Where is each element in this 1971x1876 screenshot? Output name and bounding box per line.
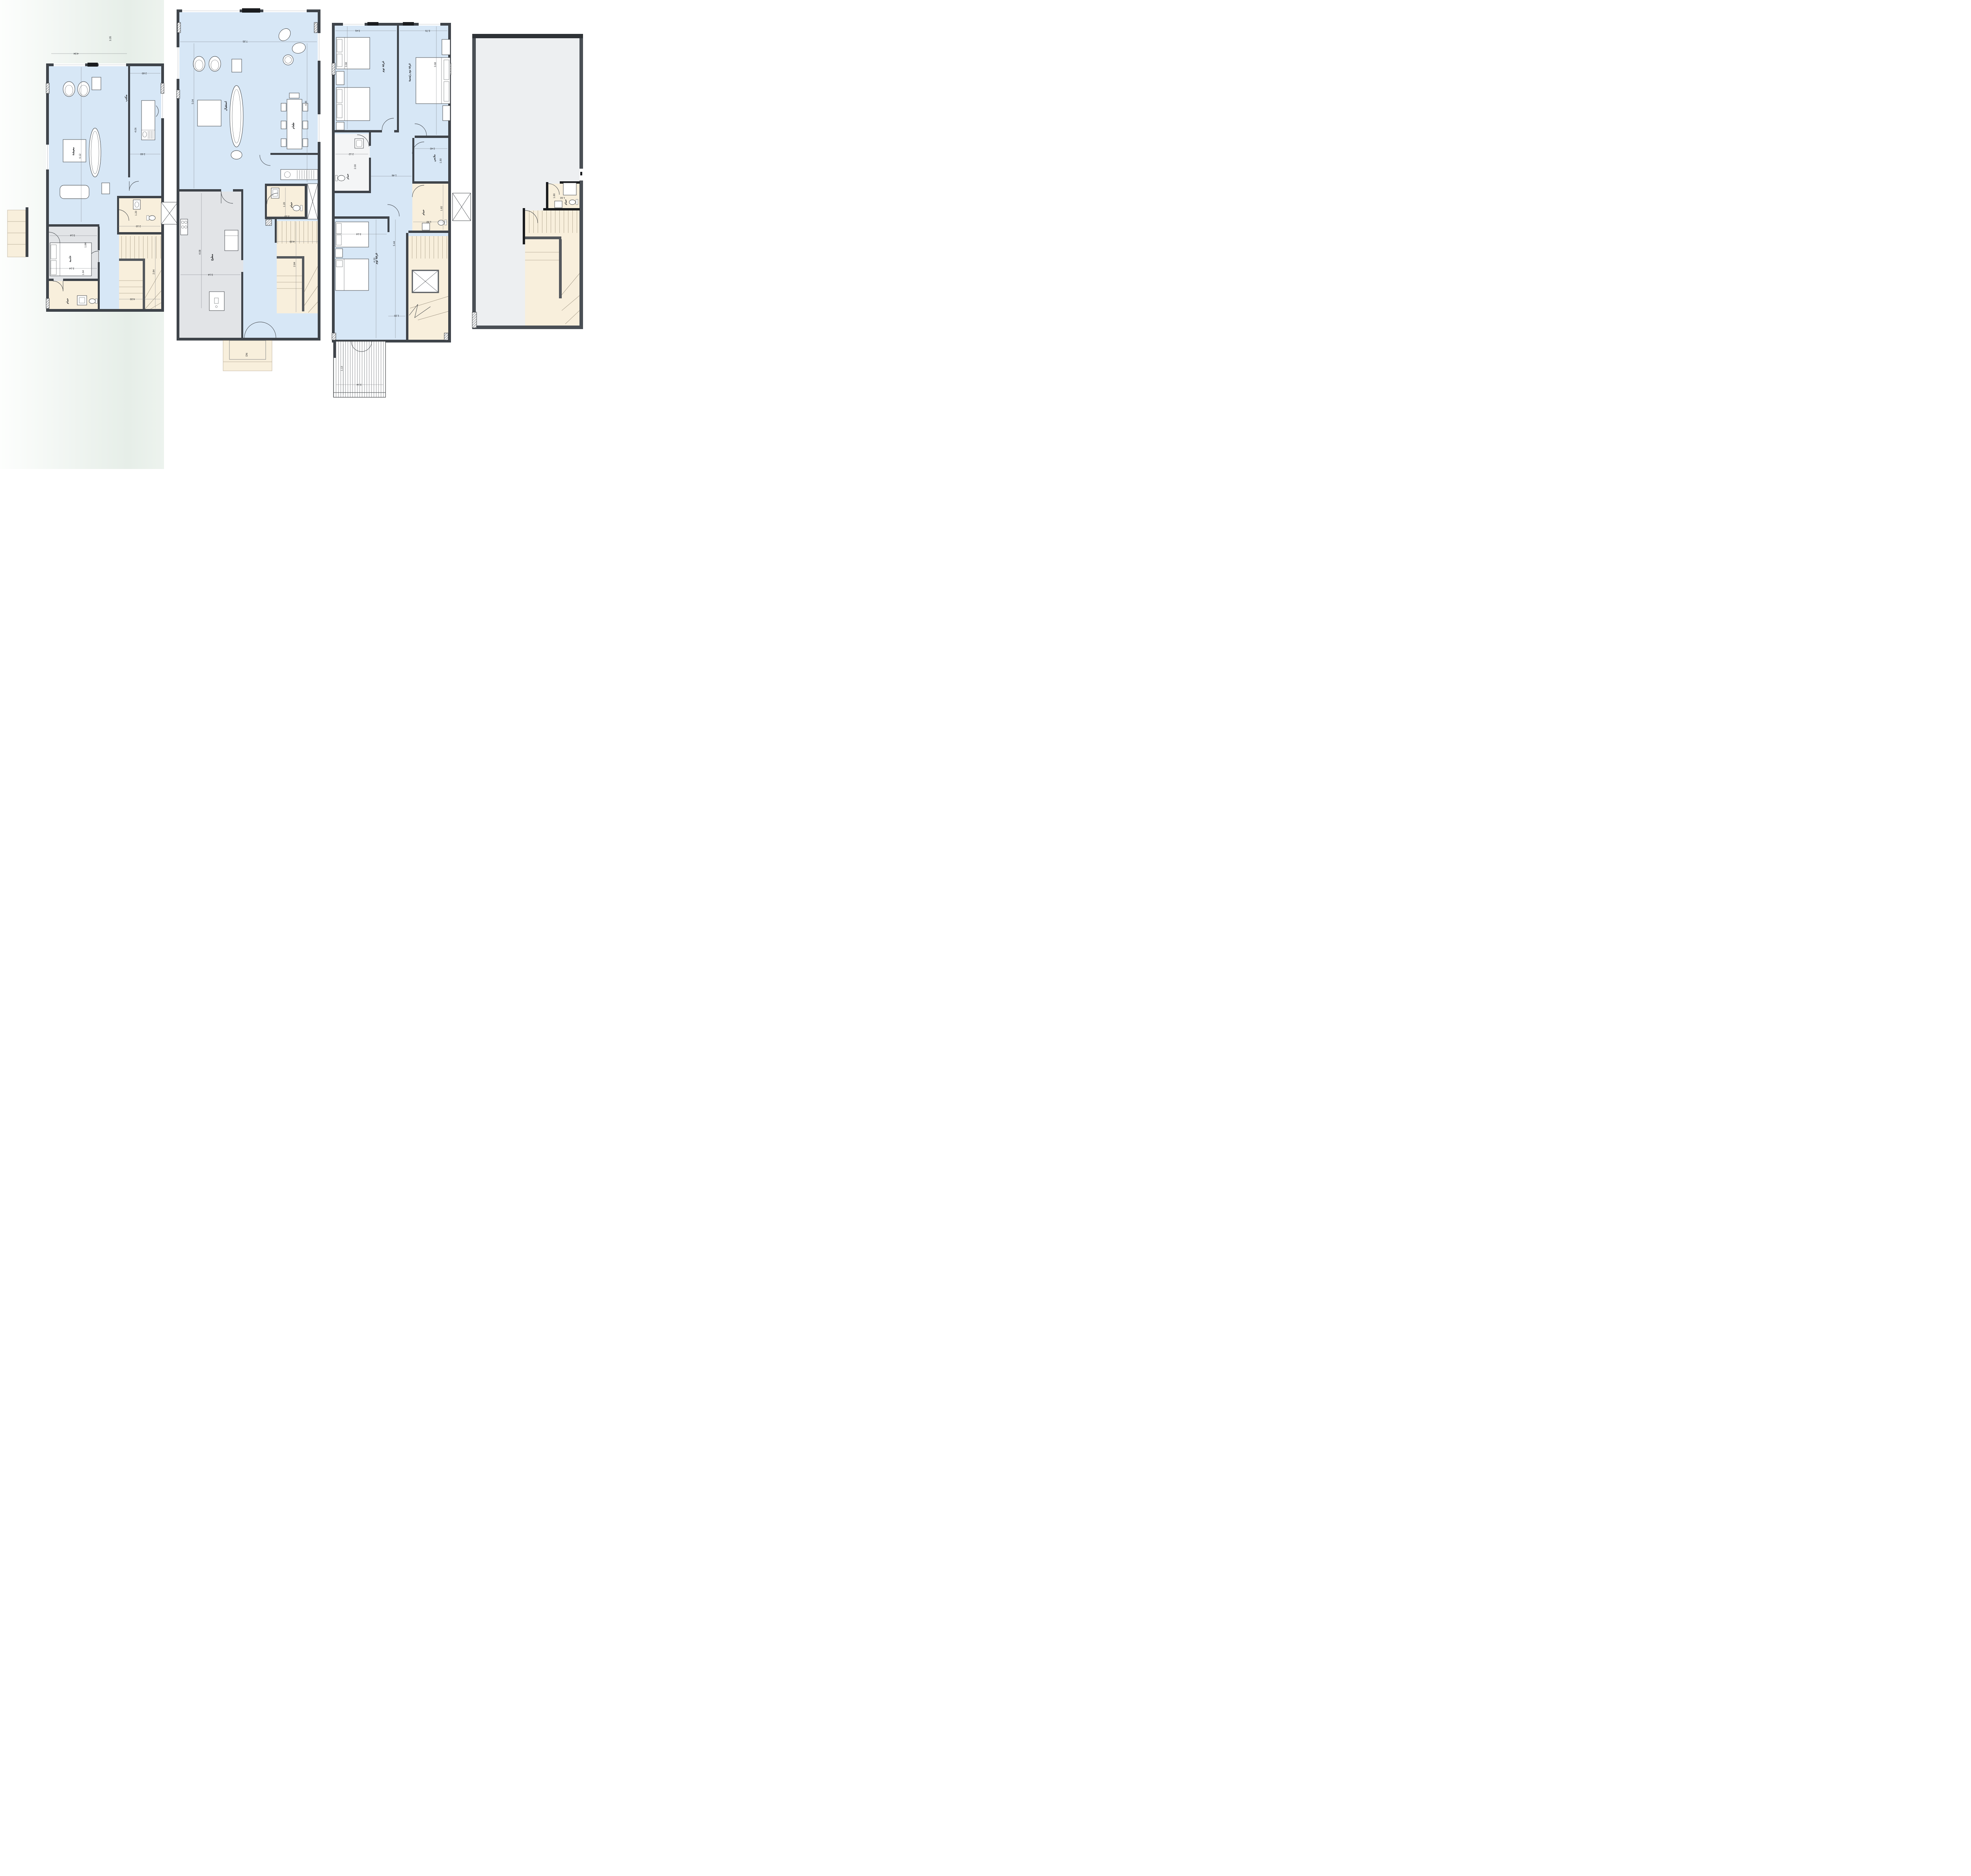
dim-label: 1.92 xyxy=(426,220,431,223)
dim-label: 7.35 xyxy=(242,40,248,43)
wall-accent xyxy=(242,8,260,13)
dim-label: 3.35 xyxy=(109,36,112,41)
dim-label: 1.82 xyxy=(440,206,443,211)
kitchen-wall xyxy=(179,189,221,192)
sofa xyxy=(60,185,89,199)
kitchen-floor xyxy=(179,192,243,338)
pillow xyxy=(336,261,343,267)
nightstand xyxy=(335,249,343,257)
column-post xyxy=(177,22,181,33)
closet-wall xyxy=(412,181,448,184)
bathroom1-floor xyxy=(335,134,370,193)
stair-wall xyxy=(275,219,277,243)
dim-label: 4.96 xyxy=(305,100,307,106)
dim-label: 4.00 xyxy=(130,298,135,300)
dim-label: 3.68 xyxy=(434,62,437,67)
room-label-bath: حمام xyxy=(66,298,69,304)
bathroom1-wall xyxy=(369,158,371,193)
dim-label: 5.44 xyxy=(393,241,396,246)
bathroom-wall xyxy=(546,182,548,208)
kitchen-wall xyxy=(241,189,243,260)
dining-chair xyxy=(281,103,286,111)
wall-accent xyxy=(403,22,414,26)
dim-label: 4.00 xyxy=(289,240,294,243)
toilet xyxy=(293,205,300,211)
dim-label: 3.14 xyxy=(356,383,361,386)
toilet xyxy=(569,200,576,205)
dining-chair xyxy=(289,93,299,98)
column-post xyxy=(177,90,180,99)
sink xyxy=(555,201,562,208)
room-label-bedroom2: غرفة نوم xyxy=(374,253,378,264)
dim-label: 1.84 xyxy=(84,242,87,248)
wall-accent xyxy=(88,63,98,67)
shower xyxy=(563,183,576,195)
dim-label: 1.80 xyxy=(553,193,556,198)
stair-wall xyxy=(406,233,408,340)
dim-label: 6.12 xyxy=(79,153,82,158)
roof-plan-d: 1.80 1.92 حمام xyxy=(472,34,583,329)
dim-label: 2.60 xyxy=(140,153,145,155)
column-post xyxy=(266,220,272,225)
nightstand xyxy=(336,122,344,130)
dim-label: 2.10 xyxy=(284,215,289,218)
bedroom1-wall xyxy=(394,130,399,132)
pillow xyxy=(337,54,342,67)
toilet xyxy=(149,216,155,220)
bathroom-wall xyxy=(265,186,267,219)
side-table xyxy=(102,183,110,194)
dim-label: 4.08 xyxy=(199,249,201,255)
column-post xyxy=(332,333,336,340)
wc-wall xyxy=(117,198,119,232)
dining-chair xyxy=(281,121,286,129)
side-table xyxy=(92,77,101,90)
stair-wall xyxy=(523,208,525,244)
bathroom-wall xyxy=(305,186,307,217)
dim-label: 1.80 xyxy=(440,158,442,163)
room-label-bath: حمام xyxy=(290,202,293,208)
room-label-bedroom1: غرفة نوم xyxy=(381,61,385,73)
column-post xyxy=(314,22,317,33)
room-label-kitchen: مطبخ xyxy=(210,254,214,261)
room-label-bath1: حمام xyxy=(346,174,349,179)
floor-plan-sheet: 3.35 xyxy=(0,0,589,469)
dim-label: 5.04 xyxy=(192,99,194,104)
entry-steps xyxy=(7,210,26,257)
pillow xyxy=(337,89,342,103)
top-wall xyxy=(472,34,583,38)
maid-room-wall xyxy=(98,227,100,250)
nightstand xyxy=(443,106,450,121)
dim-label: 1.20 xyxy=(135,210,138,216)
maid-room-wall xyxy=(98,262,100,309)
dim-label: 1.20 xyxy=(394,314,399,317)
side-table xyxy=(232,59,242,72)
dim-label: 1.13 xyxy=(341,366,343,371)
wall-accent xyxy=(367,22,378,26)
toilet xyxy=(438,220,444,225)
toilet xyxy=(89,299,95,303)
wardrobe xyxy=(442,39,450,55)
dim-label: 3.70 xyxy=(425,29,430,32)
basin xyxy=(285,172,291,178)
rug xyxy=(197,100,221,126)
dim-label: 3.14 xyxy=(208,273,213,276)
entry-marker: DN xyxy=(246,353,248,357)
bedroom-partition xyxy=(397,26,399,132)
hall-wall xyxy=(270,153,320,155)
room-label-dining: طعام xyxy=(291,123,295,129)
dim-label: 2.42 xyxy=(430,147,435,150)
wc-wall xyxy=(117,196,161,198)
bathroom1-wall xyxy=(335,191,371,193)
garden-wall xyxy=(26,207,28,257)
toilet xyxy=(338,175,345,181)
dim-label: 2.00 xyxy=(354,164,357,169)
floor-plan-b: DN 7.35 5.04 4.96 4.08 3.14 1.20 2.10 4.… xyxy=(177,8,320,371)
room-label-closet: ملابس xyxy=(433,154,436,162)
dim-label: 1.46 xyxy=(391,174,397,177)
dim-label: 3.41 xyxy=(355,29,360,32)
dim-label: 2.84 xyxy=(293,262,296,267)
wall-accent xyxy=(580,172,582,175)
room-label-maid: خادمة xyxy=(69,256,72,262)
dim-label: 2.10 xyxy=(136,225,141,227)
room-label-bath2: حمام xyxy=(422,210,425,215)
dim-label: 1.64 xyxy=(82,270,85,275)
dim-label: 3.14 xyxy=(356,233,361,235)
column-post xyxy=(46,83,49,93)
pillow xyxy=(336,223,341,234)
bedroom2-wall xyxy=(387,216,389,232)
armchair xyxy=(231,151,242,159)
column-post xyxy=(332,63,335,75)
nightstand xyxy=(336,71,344,85)
pillow xyxy=(444,82,449,101)
pillow xyxy=(337,104,342,118)
dim-label: 3.14 xyxy=(69,267,74,270)
dim-label: 1.92 xyxy=(560,196,565,199)
wc-wall xyxy=(117,232,161,234)
room-label-office: مكتب xyxy=(124,95,128,102)
column-post xyxy=(472,312,477,328)
bedroom2-wall xyxy=(335,216,387,219)
sink xyxy=(422,223,430,230)
column-post xyxy=(46,298,49,309)
dim-label: 4.54 xyxy=(73,52,78,55)
bathroom-wall xyxy=(63,279,99,281)
bathroom1-wall xyxy=(369,132,371,146)
bathroom-floor xyxy=(49,281,99,309)
plans-canvas: 3.35 xyxy=(0,0,589,469)
dim-label: 2.12 xyxy=(348,153,354,155)
pillow xyxy=(337,39,342,52)
dim-label: 1.20 xyxy=(283,202,286,207)
bathroom2-wall xyxy=(408,231,448,233)
column-post xyxy=(161,83,164,93)
dining-chair xyxy=(281,139,286,147)
room-label-living: معيشة xyxy=(71,147,75,156)
dim-label: 3.68 xyxy=(345,62,348,67)
pillow xyxy=(51,261,56,275)
room-label-reception: استقبال xyxy=(224,101,227,111)
closet-wall xyxy=(412,138,414,181)
office-partition-wall xyxy=(128,66,130,177)
basin xyxy=(143,132,147,137)
column-post xyxy=(444,333,448,340)
pillow xyxy=(51,245,56,259)
room-label-bath: حمام xyxy=(564,199,567,205)
maid-room-wall xyxy=(49,224,99,227)
dim-label: 3.14 xyxy=(70,234,75,236)
bathroom-wall xyxy=(265,184,307,186)
pillow xyxy=(336,235,341,245)
dim-label: 2.60 xyxy=(142,72,147,74)
pillow xyxy=(444,60,449,80)
master-wall xyxy=(415,136,448,138)
dim-label: 4.06 xyxy=(134,127,137,132)
dim-label: 2.84 xyxy=(153,269,155,274)
bedroom1-wall xyxy=(335,130,382,132)
room-label-master: غرفة نوم رئيسية xyxy=(408,63,411,82)
bathroom-wall xyxy=(49,279,54,281)
floor-plan-c: 3.41 3.70 3.68 3.68 2.12 2.00 2.42 1.80 … xyxy=(332,22,471,397)
bathroom-wall xyxy=(543,208,580,210)
counter xyxy=(225,230,238,251)
kitchen-wall xyxy=(241,272,243,338)
entry-porch: DN xyxy=(223,341,272,371)
